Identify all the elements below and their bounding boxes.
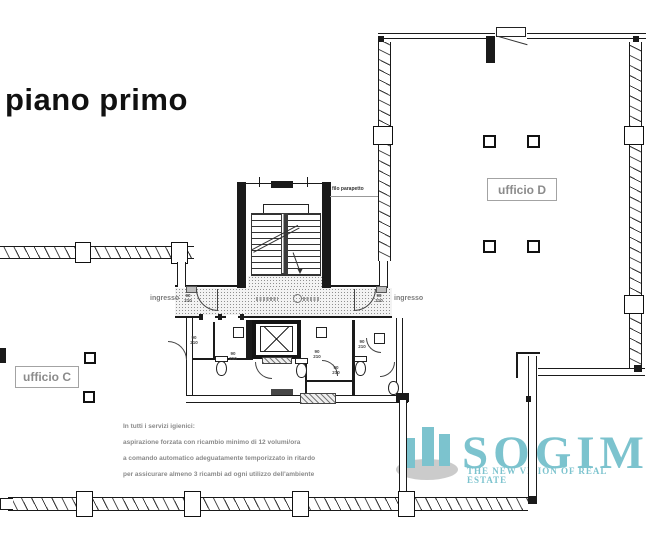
door-height: 210: [190, 340, 198, 345]
room-label-office-c-text: ufficio C: [23, 370, 71, 384]
door-arc-wc: [380, 362, 395, 377]
door-height: 210: [375, 298, 383, 303]
door-height: 210: [332, 370, 340, 375]
top-wall-door: [496, 27, 526, 37]
door-gap: [203, 315, 215, 319]
toilet: [296, 363, 307, 378]
wall-entrance-left: [177, 262, 186, 287]
door-pier: [218, 314, 222, 320]
stair-top-door: [271, 181, 293, 188]
note-line-1: In tutti i servizi igienici:: [123, 423, 195, 430]
facade-end-cap: [0, 498, 13, 510]
facade-pillar: [184, 491, 201, 517]
stair-wall-right: [322, 182, 331, 290]
door-size-label: 90 210: [228, 351, 238, 361]
door-leaf: [217, 289, 218, 310]
wall-lower-right: [528, 356, 537, 503]
column: [483, 135, 496, 148]
parapet-leader-line: [330, 196, 378, 197]
room-label-office-c: ufficio C: [15, 366, 79, 388]
floor-plan-canvas: SOGIM THE NEW VISION OF REAL ESTATE pian…: [0, 0, 646, 553]
window-wall-office-c-top: [0, 246, 194, 259]
parapet-note: filo parapetto: [332, 186, 364, 192]
door-size-label: 90 210: [189, 335, 199, 345]
bar-chart-building-icon: [422, 427, 434, 466]
wall-wc-left: [186, 318, 193, 398]
bar-chart-building-icon: [439, 434, 450, 466]
elevator-icon: [260, 326, 293, 352]
wall-step: [516, 352, 540, 354]
wall-internal: [246, 320, 252, 360]
wall-office-d-top: [378, 33, 495, 39]
column: [483, 240, 496, 253]
column: [527, 240, 540, 253]
entrance-label-right: ingresso: [394, 295, 423, 302]
door-size-label: 90 210: [183, 293, 193, 303]
sink: [233, 327, 244, 338]
elevator: [252, 320, 301, 359]
room-label-office-d: ufficio D: [487, 178, 557, 201]
door-pier: [486, 36, 495, 63]
window-wall-office-d-left: [378, 42, 391, 261]
room-label-office-d-text: ufficio D: [498, 183, 546, 197]
level-marker-icon: [293, 294, 302, 303]
vent-grille: [300, 393, 336, 404]
stair-stringer: [281, 213, 288, 274]
logo-tagline: THE NEW VISION OF REAL ESTATE: [467, 467, 646, 485]
wall-notch: [526, 396, 531, 402]
stair-lobby-floor: [248, 276, 322, 288]
facade-pillar: [76, 491, 93, 517]
illegible-annotation: [256, 297, 278, 301]
wall-corner: [528, 496, 537, 504]
illegible-annotation: [303, 297, 319, 301]
sink: [374, 333, 385, 344]
stair-arrow-head: [297, 268, 303, 274]
toilet: [355, 361, 366, 376]
facade-pillar: [373, 126, 393, 145]
wall-corner: [634, 365, 642, 372]
door-height: 210: [229, 356, 237, 361]
door-height: 210: [184, 298, 192, 303]
door-leaf: [354, 289, 355, 310]
tick: [259, 177, 260, 187]
wall-internal: [213, 322, 215, 358]
facade-pillar: [292, 491, 309, 517]
door-size-label: 90 210: [374, 293, 384, 303]
facade-pillar: [75, 242, 91, 263]
facade-pillar: [398, 491, 415, 517]
door-size-label: 90 210: [331, 365, 341, 375]
sogim-logo: SOGIM THE NEW VISION OF REAL ESTATE: [393, 424, 646, 490]
wall-office-d-bottom: [538, 368, 645, 376]
facade-pillar: [171, 242, 188, 264]
corridor-top-line: [331, 285, 379, 287]
toilet: [216, 361, 227, 376]
door-height: 210: [358, 344, 366, 349]
window-wall-office-d-right: [629, 42, 642, 368]
sanitary-note: In tutti i servizi igienici: aspirazione…: [123, 415, 413, 479]
note-line-3: a comando automatico adeguatamente tempo…: [123, 455, 315, 462]
wall-below-window: [379, 261, 388, 288]
column: [527, 135, 540, 148]
tick: [307, 177, 308, 187]
wall-internal: [305, 380, 352, 382]
entrance-sill-right: [376, 286, 387, 293]
column: [83, 391, 95, 403]
door-arc-wc: [255, 362, 272, 379]
note-line-4: per assicurare almeno 3 ricambi ad ogni …: [123, 471, 314, 478]
door-gap: [226, 315, 238, 319]
door-size-label: 90 210: [312, 349, 322, 359]
facade-pillar: [624, 126, 644, 145]
facade-pillar: [624, 295, 644, 314]
column: [84, 352, 96, 364]
stair-wall-left: [237, 182, 246, 290]
door-arc-wc: [168, 341, 187, 360]
door-pier: [199, 314, 203, 320]
door-pier: [240, 314, 244, 320]
entrance-label-left: ingresso: [150, 295, 179, 302]
door-size-label: 90 210: [357, 339, 367, 349]
wall-step: [516, 352, 518, 378]
page-title: piano primo: [5, 82, 188, 118]
note-line-2: aspirazione forzata con ricambio minimo …: [123, 439, 300, 446]
wall-pier-left-edge: [0, 348, 6, 363]
door-height: 210: [313, 354, 321, 359]
door-leaf-line: [497, 36, 527, 46]
wall-wc-bottom: [186, 395, 408, 403]
wall-office-d-top: [527, 33, 646, 39]
sink: [316, 327, 327, 338]
